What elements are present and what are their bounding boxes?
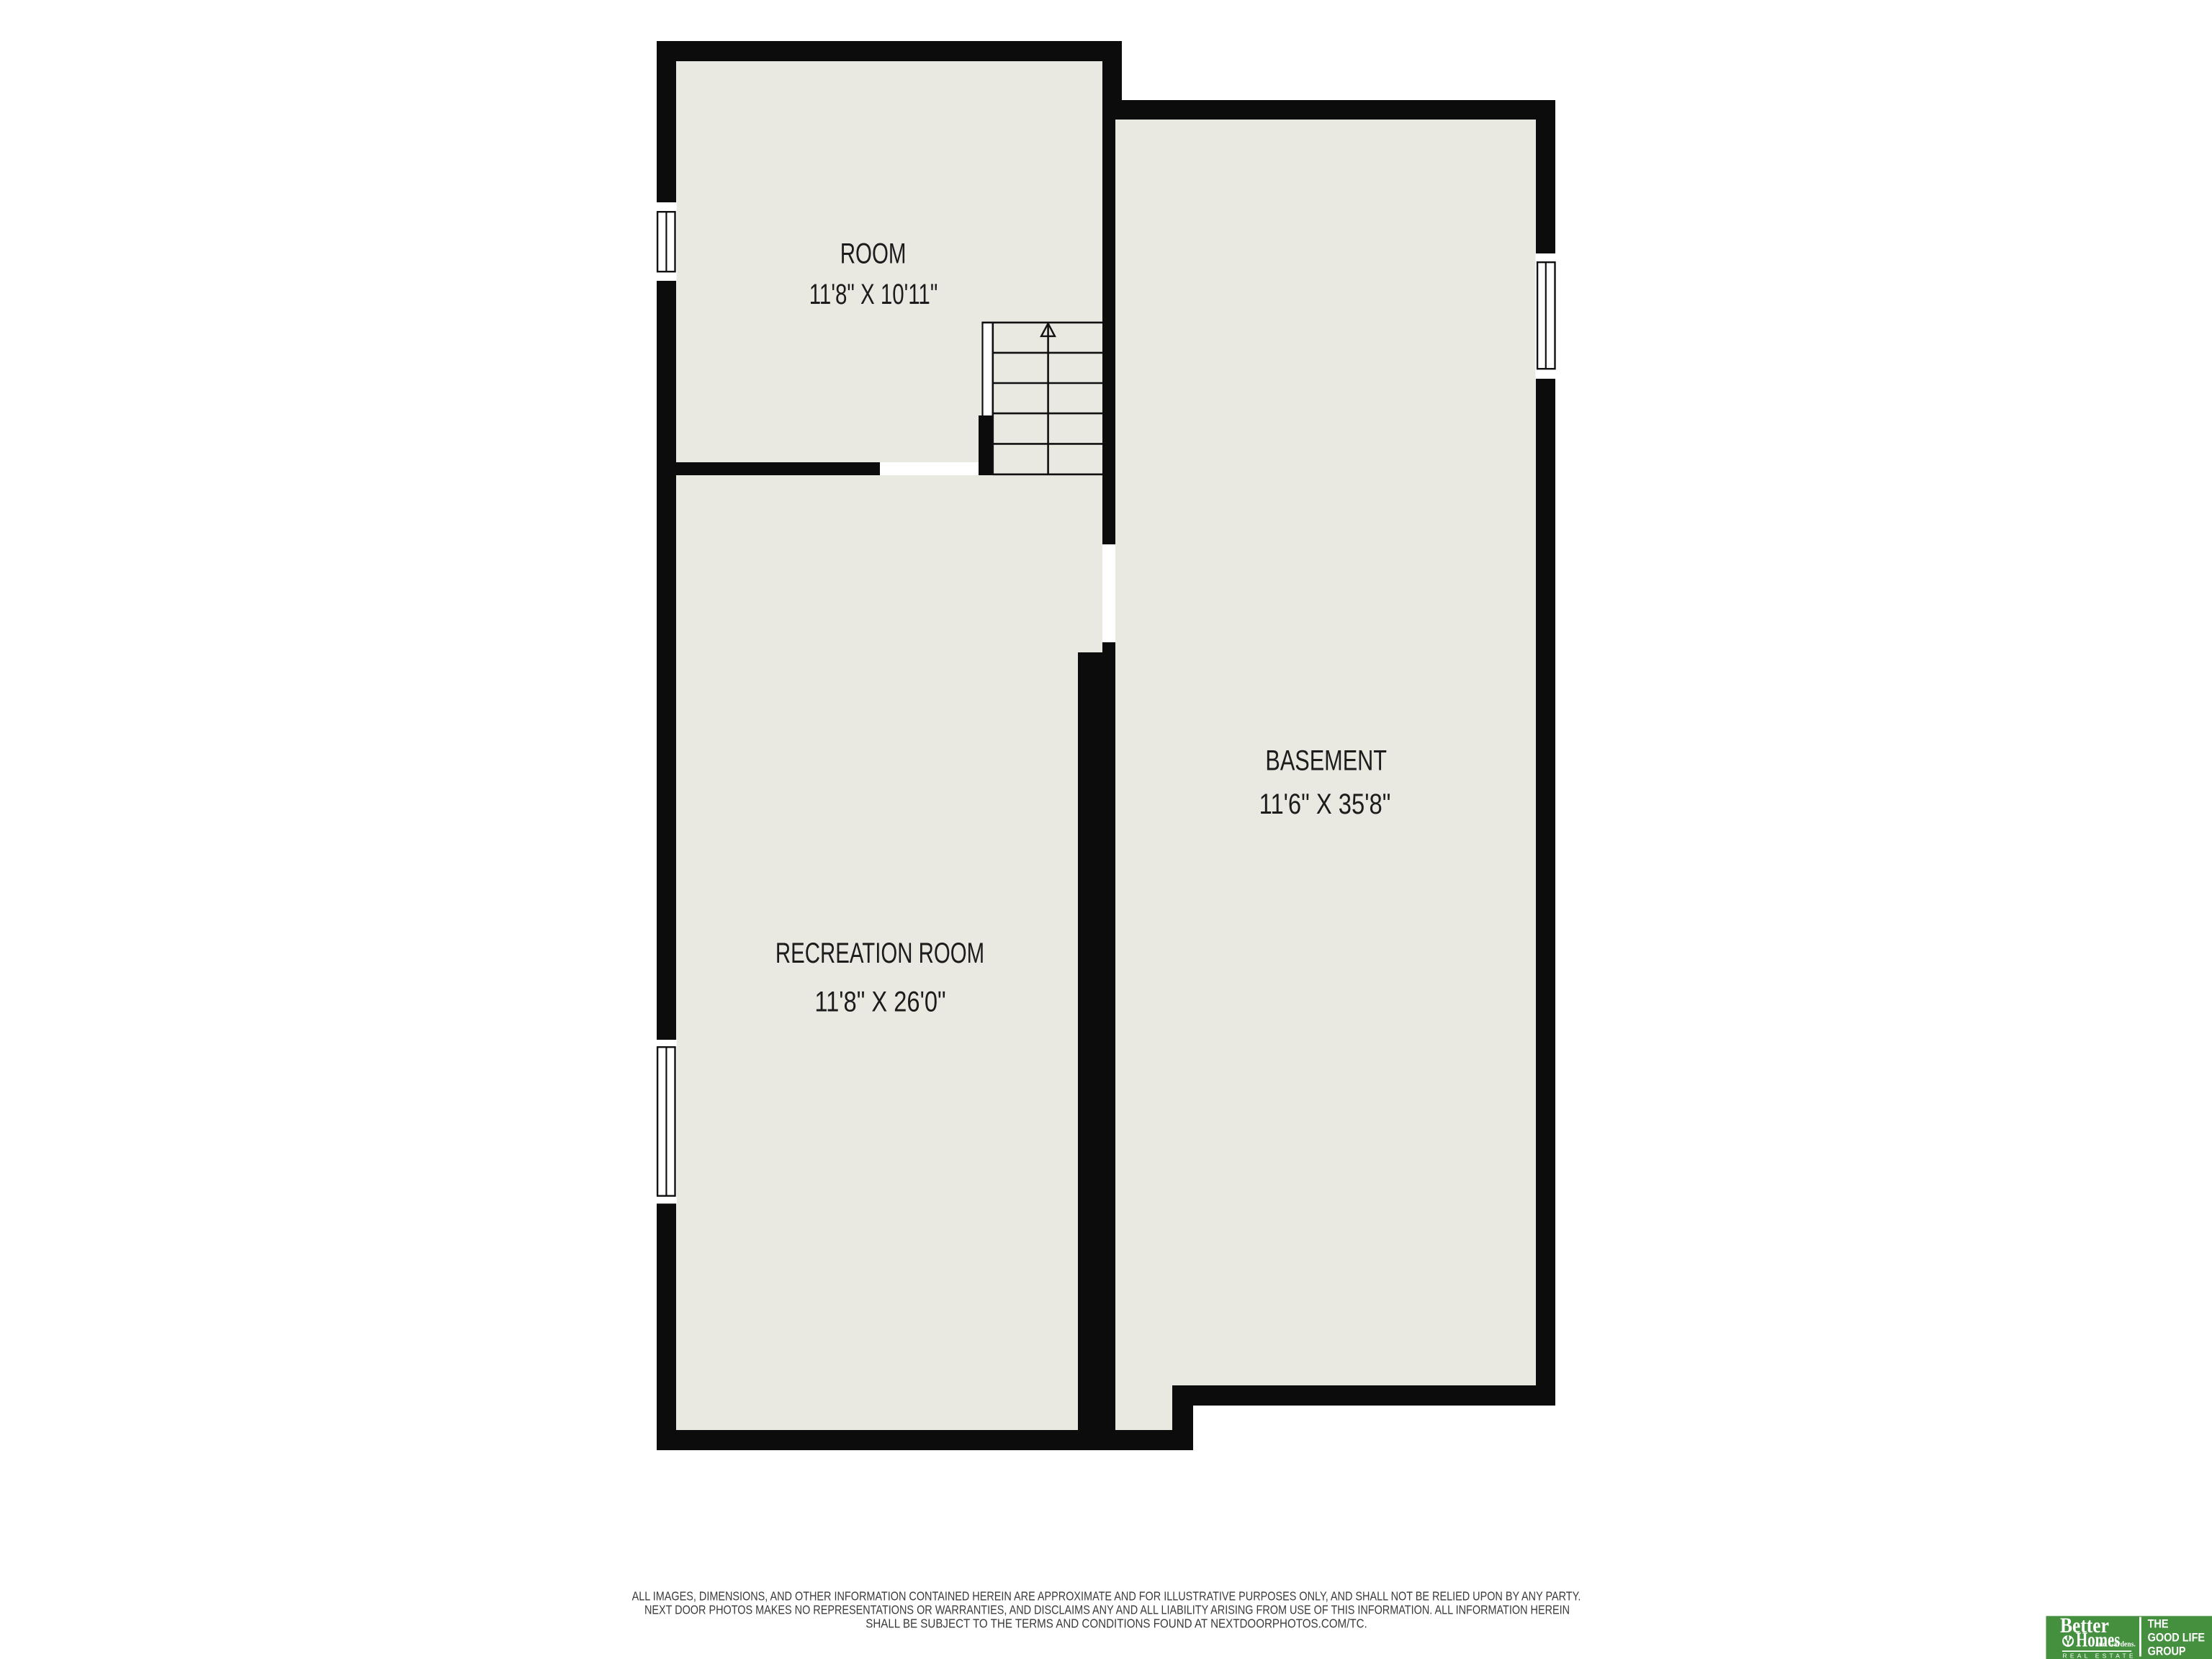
svg-text:and Gardens.: and Gardens. [2095,1640,2136,1648]
svg-text:GROUP: GROUP [2148,1645,2186,1658]
svg-text:11'8" X 26'0": 11'8" X 26'0" [814,986,945,1018]
svg-text:11'6" X 35'8": 11'6" X 35'8" [1259,788,1391,820]
svg-text:THE: THE [2148,1618,2169,1631]
svg-text:SHALL BE SUBJECT TO THE TERMS: SHALL BE SUBJECT TO THE TERMS AND CONDIT… [866,1617,1367,1631]
svg-text:RECREATION ROOM: RECREATION ROOM [775,938,984,969]
svg-text:ALL IMAGES, DIMENSIONS, AND OT: ALL IMAGES, DIMENSIONS, AND OTHER INFORM… [632,1589,1581,1604]
svg-text:GOOD LIFE: GOOD LIFE [2148,1631,2205,1644]
svg-text:NEXT DOOR PHOTOS MAKES NO REPR: NEXT DOOR PHOTOS MAKES NO REPRESENTATION… [644,1603,1570,1617]
svg-text:REAL ESTATE: REAL ESTATE [2063,1653,2136,1659]
svg-text:BASEMENT: BASEMENT [1265,745,1387,777]
svg-text:ROOM: ROOM [840,238,907,269]
svg-text:11'8" X 10'11": 11'8" X 10'11" [809,279,938,310]
